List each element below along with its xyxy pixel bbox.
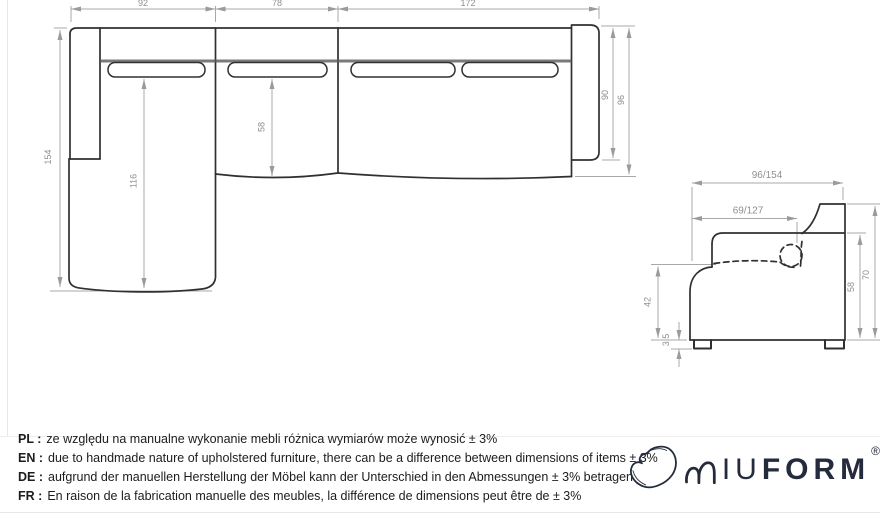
dim-side-back-height: 58 (846, 282, 856, 292)
seat-contour-dashed (714, 239, 803, 268)
logo-text-iu: IU (722, 453, 762, 487)
cushion-slot (108, 63, 205, 78)
cushion-slot (462, 63, 558, 78)
sofa-side-view: 96/154 69/127 42 3.5 58 70 (643, 170, 880, 367)
disclaimer-lang-label: PL : (18, 432, 41, 446)
dim-chaise-length: 116 (129, 174, 139, 188)
miuform-logo: IUFORM ® (627, 434, 880, 500)
disclaimer-text: ze względu na manualne wykonanie mebli r… (46, 432, 497, 446)
sofa-side-view-outline (690, 204, 845, 349)
dimension-sheet: { "colors": { "outline": "#303030", "cre… (0, 0, 880, 520)
top-view-dimension-lines (50, 6, 636, 291)
cushion-slot (351, 63, 455, 78)
disclaimer-line-pl: PL :ze względu na manualne wykonanie meb… (18, 430, 658, 449)
dim-width-middle-section: 78 (272, 0, 282, 8)
dim-width-chaise-section: 92 (138, 0, 148, 8)
disclaimer-text: due to handmade nature of upholstered fu… (48, 451, 658, 465)
disclaimer-lang-label: FR : (18, 489, 42, 503)
pillow-section-dashed-circle (780, 245, 802, 267)
disclaimer-lang-label: EN : (18, 451, 43, 465)
sofa-top-view: 92 78 172 154 116 58 90 96 (43, 0, 636, 292)
disclaimer-line-de: DE :aufgrund der manuellen Herstellung d… (18, 468, 658, 487)
disclaimer-block: PL :ze względu na manualne wykonanie meb… (18, 430, 658, 506)
disclaimer-line-fr: FR :En raison de la fabrication manuelle… (18, 487, 658, 506)
dim-width-right-section: 172 (460, 0, 475, 8)
dim-side-inner-depth: 69/127 (733, 206, 764, 217)
disclaimer-text: aufgrund der manuellen Herstellung der M… (48, 470, 633, 484)
back-cushions (108, 63, 558, 78)
dim-side-total-height: 70 (861, 270, 871, 280)
dim-chaise-depth: 154 (43, 149, 53, 164)
dim-seat-depth: 58 (257, 122, 267, 132)
miuform-bean-icon (627, 436, 678, 498)
dim-total-depth: 96 (616, 95, 626, 105)
dim-arm-depth: 90 (600, 90, 610, 100)
logo-text-form: FORM (762, 453, 870, 487)
miuform-m-glyph (685, 455, 719, 489)
disclaimer-lang-label: DE : (18, 470, 43, 484)
dim-side-seat-height: 42 (643, 297, 653, 307)
dim-side-total-depth: 96/154 (752, 170, 783, 181)
cushion-slot (228, 63, 327, 78)
disclaimer-line-en: EN :due to handmade nature of upholstere… (18, 449, 658, 468)
disclaimer-text: En raison de la fabrication manuelle des… (47, 489, 581, 503)
dim-side-foot-height: 3.5 (661, 334, 671, 347)
registered-trademark-symbol: ® (871, 432, 880, 458)
